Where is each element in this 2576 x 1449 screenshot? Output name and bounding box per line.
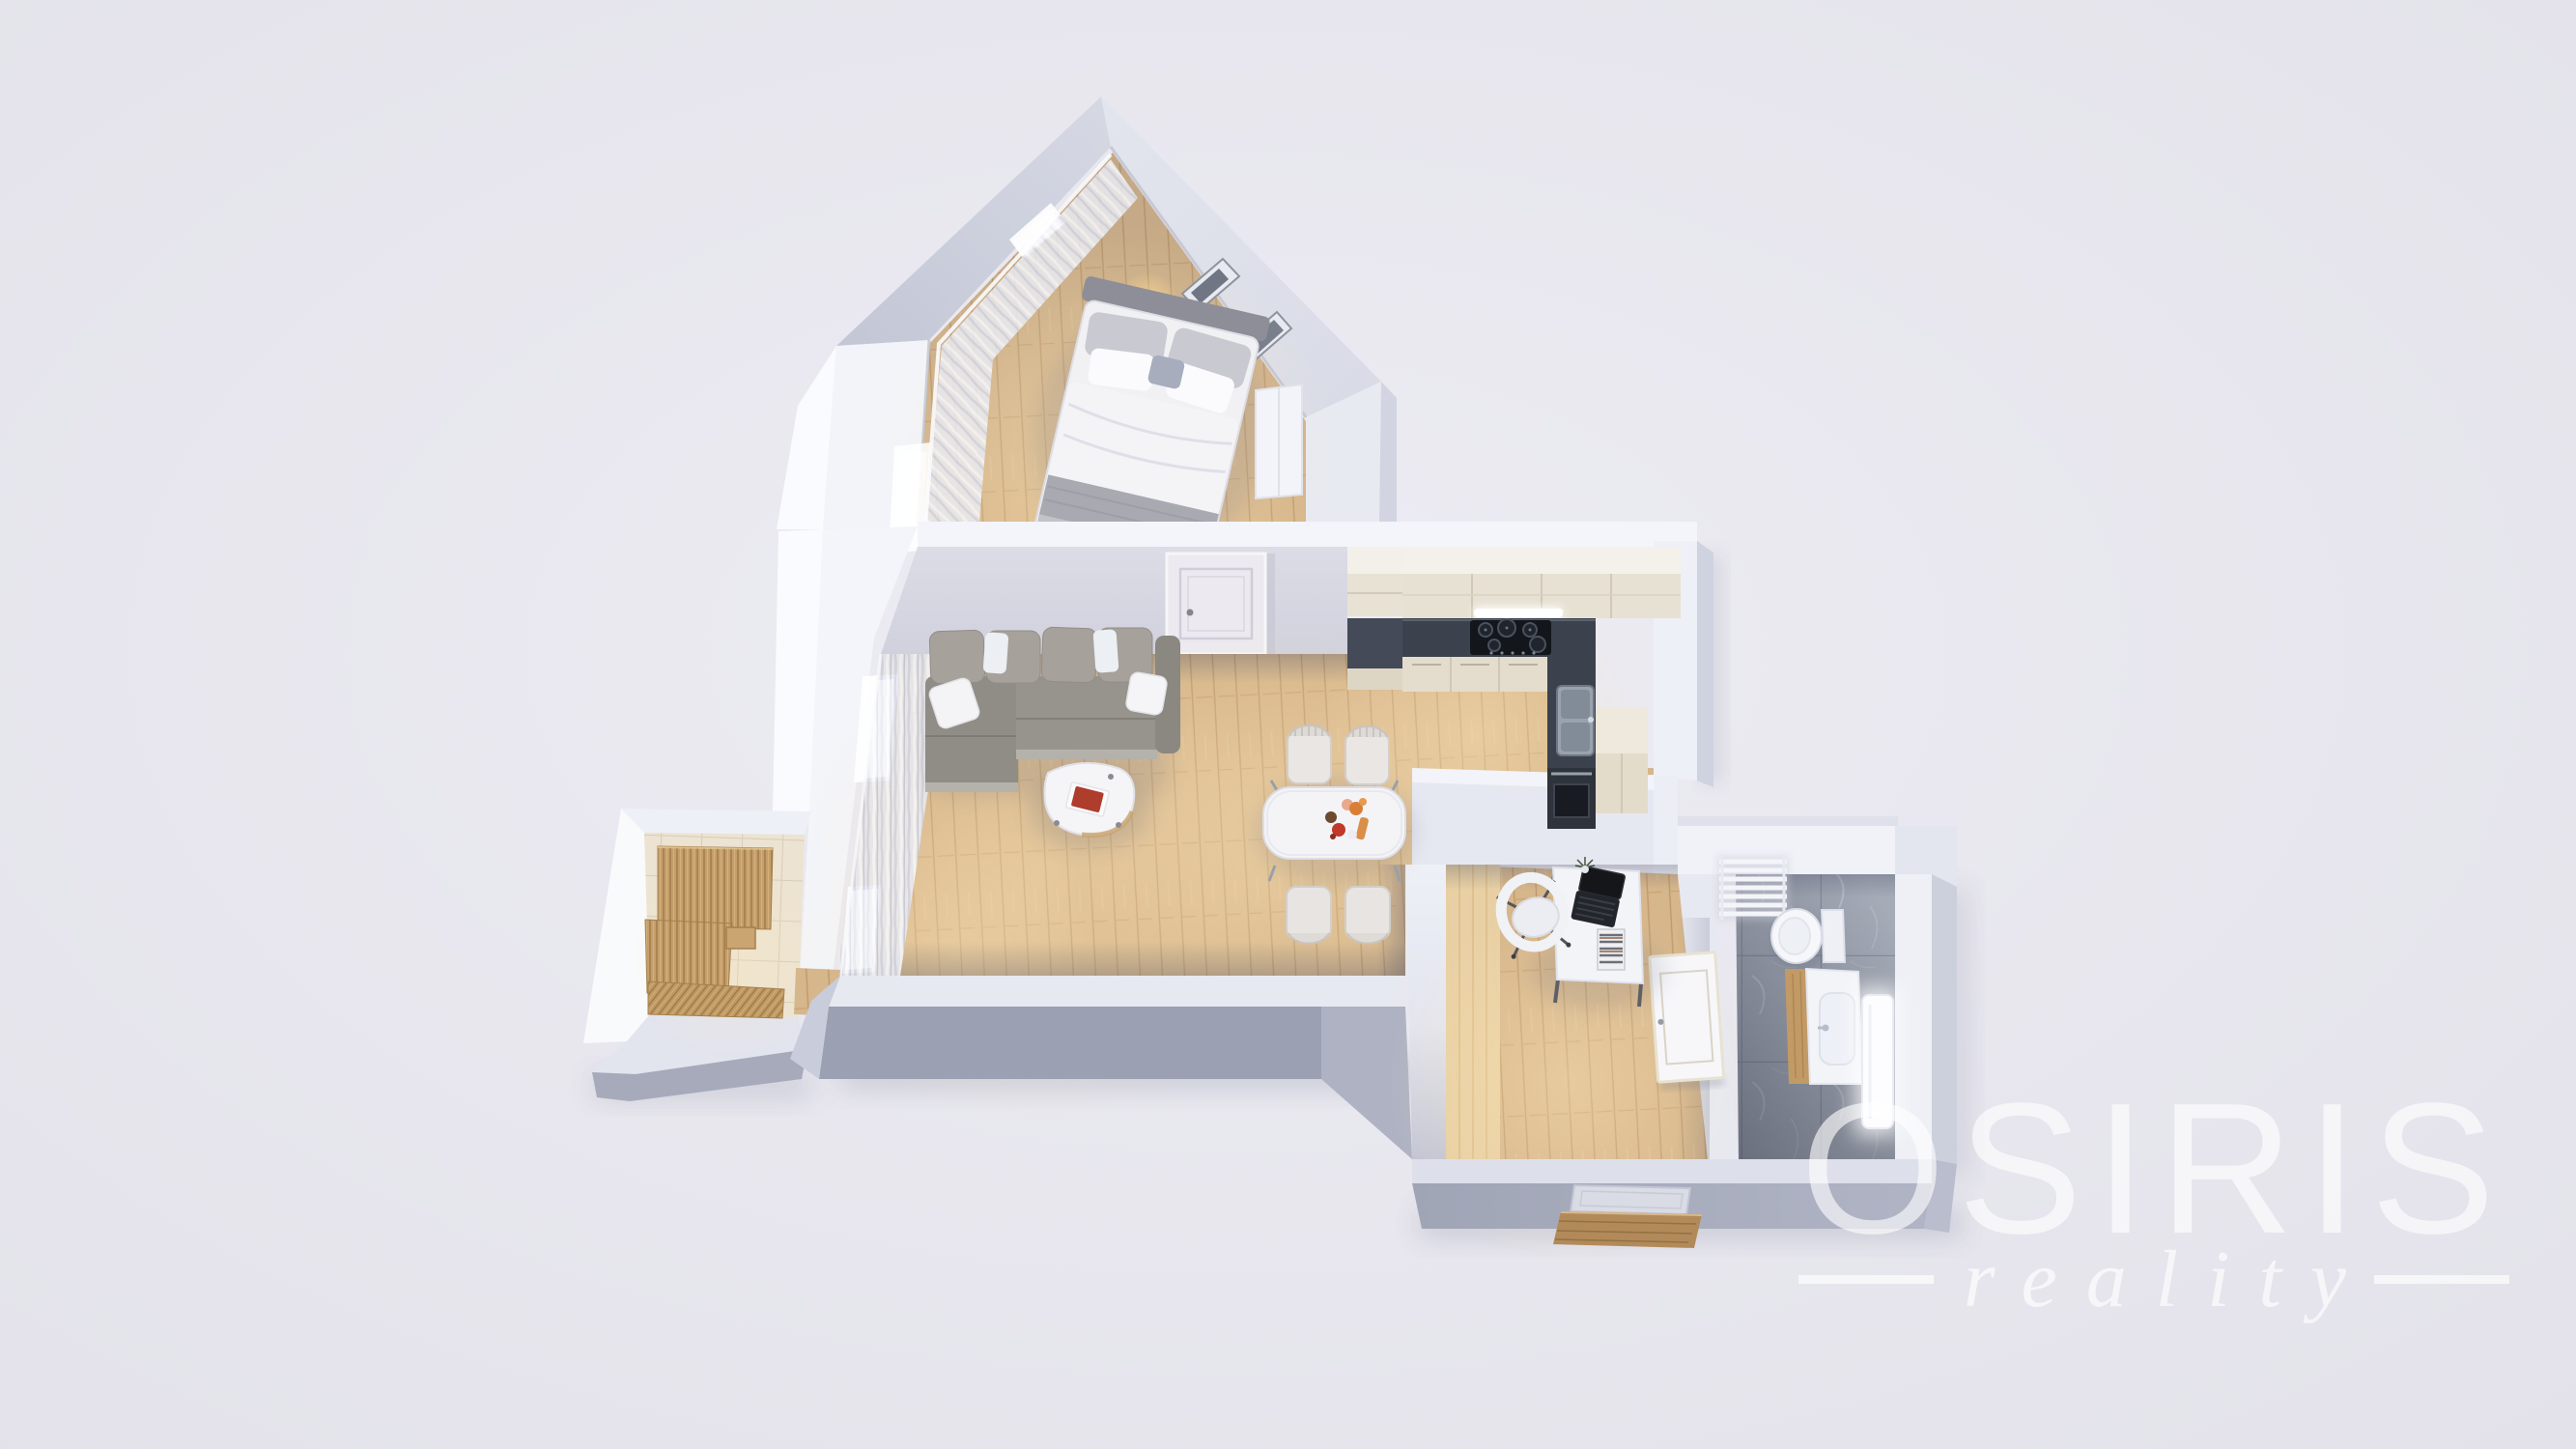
kitchen-oven xyxy=(1547,768,1596,829)
dining-chair xyxy=(1345,887,1390,944)
kitchen-tall-cabinet-left xyxy=(1347,547,1402,690)
dining-chair xyxy=(1287,887,1331,944)
kitchen-base-cabinets xyxy=(1402,657,1547,692)
entry-wall-top xyxy=(621,809,811,835)
towel-radiator xyxy=(1717,856,1789,920)
watermark-line-right xyxy=(2374,1275,2509,1284)
wall-connector xyxy=(1654,776,1678,874)
entrance-threshold xyxy=(1553,1185,1702,1248)
kitchen-hob xyxy=(1470,619,1551,655)
toilet-tank xyxy=(1822,910,1845,962)
floor-plan-render: OSIRIS reality xyxy=(0,0,2576,1449)
wall-shadow-on-floor xyxy=(840,942,1405,976)
kitchen-wall-right-outer xyxy=(1697,541,1713,787)
toilet xyxy=(1771,909,1845,971)
wall-south-face xyxy=(819,1007,1405,1079)
dining-chair xyxy=(1345,724,1389,784)
faucet xyxy=(1588,717,1594,723)
dining-chair xyxy=(1288,724,1331,783)
watermark-subtitle: reality xyxy=(1964,1235,2375,1324)
bedroom-wardrobe xyxy=(1256,384,1302,498)
wall-top-face xyxy=(829,976,1405,1007)
divider-wall-top-face xyxy=(918,522,1697,547)
floor-plan-screenshot: OSIRIS reality xyxy=(0,0,2576,1449)
kitchen-sink-counter xyxy=(1547,657,1596,768)
sofa-pillow xyxy=(1092,629,1118,673)
led-light-strip-core xyxy=(1474,609,1563,617)
sofa-pillow xyxy=(983,632,1009,674)
door-handle xyxy=(1187,610,1194,616)
bedroom-wall-right-outer-face xyxy=(1379,382,1397,522)
sofa-pillow xyxy=(1125,671,1168,716)
watermark-line-left xyxy=(1798,1275,1934,1284)
kitchen-cabinet-right xyxy=(1596,707,1648,813)
desk-books xyxy=(1598,929,1625,970)
bath-wall-top-lip xyxy=(1678,816,1898,826)
wardrobe-shelf xyxy=(726,927,755,949)
